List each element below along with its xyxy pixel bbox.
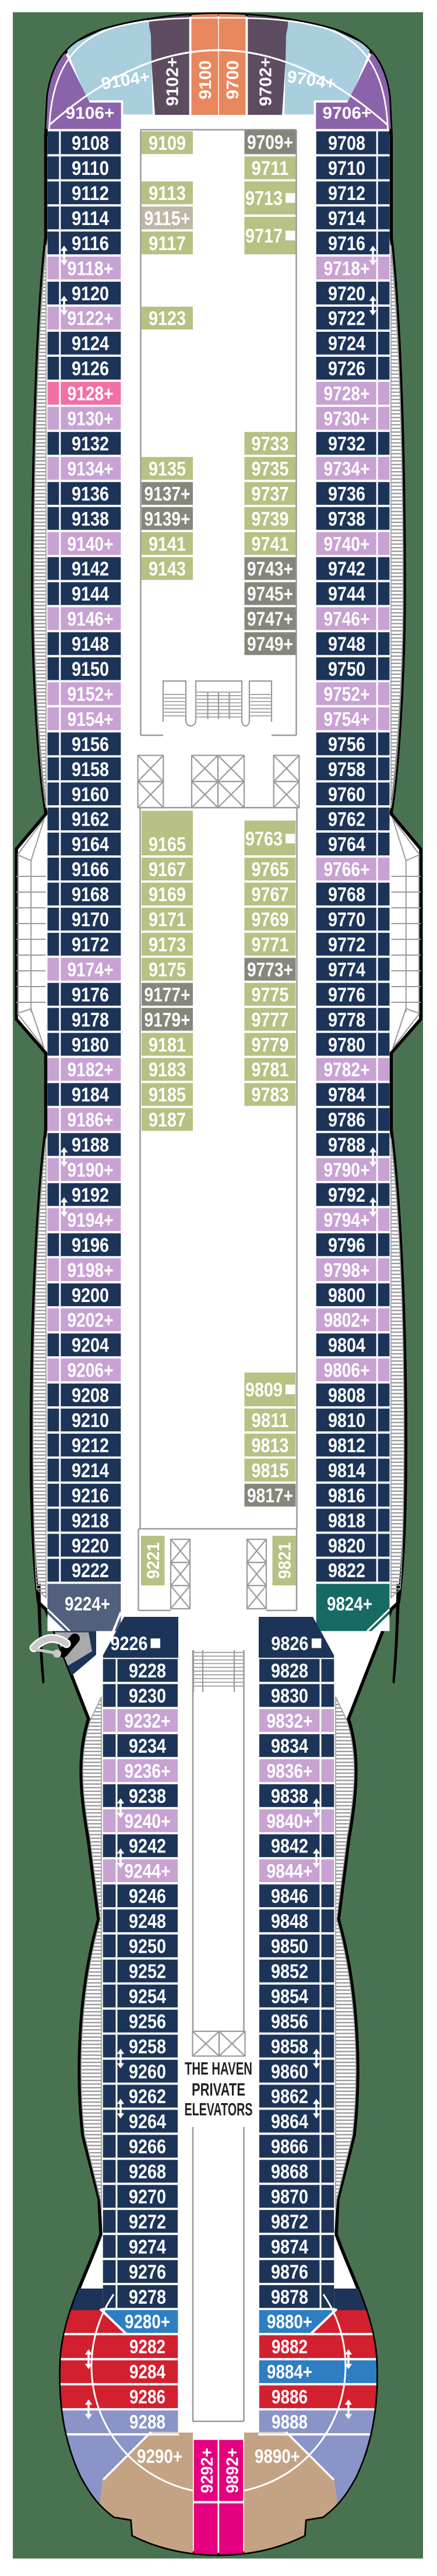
svg-text:9732: 9732 [328, 433, 365, 455]
svg-text:9178: 9178 [72, 1009, 109, 1031]
svg-text:9712: 9712 [328, 183, 365, 205]
svg-text:THE HAVEN: THE HAVEN [185, 2059, 252, 2079]
svg-text:9858: 9858 [271, 2035, 308, 2058]
svg-text:9763: 9763 [245, 828, 283, 850]
svg-text:9270: 9270 [129, 2186, 166, 2208]
svg-text:9110: 9110 [72, 157, 109, 180]
svg-text:9282: 9282 [129, 2336, 165, 2357]
svg-text:9846: 9846 [271, 1886, 308, 1908]
svg-text:9822: 9822 [328, 1560, 365, 1582]
svg-text:9114: 9114 [72, 208, 109, 230]
svg-text:9200: 9200 [72, 1285, 109, 1307]
svg-text:9798+: 9798+ [324, 1259, 370, 1282]
svg-text:9258: 9258 [129, 2035, 166, 2058]
svg-text:9108: 9108 [72, 132, 109, 155]
svg-text:9828: 9828 [271, 1660, 308, 1682]
svg-text:9834: 9834 [271, 1735, 308, 1757]
svg-text:9804: 9804 [328, 1335, 365, 1357]
svg-text:9238: 9238 [129, 1785, 166, 1808]
svg-text:9284: 9284 [129, 2361, 166, 2382]
svg-text:9224+: 9224+ [65, 1593, 110, 1615]
svg-text:9260: 9260 [129, 2061, 166, 2083]
svg-text:9868: 9868 [271, 2161, 308, 2183]
svg-text:9844+: 9844+ [267, 1861, 313, 1883]
svg-text:9802+: 9802+ [324, 1310, 370, 1332]
svg-text:9202+: 9202+ [68, 1310, 114, 1332]
svg-text:9813: 9813 [252, 1435, 289, 1457]
svg-text:9779: 9779 [252, 1034, 289, 1056]
svg-text:9730+: 9730+ [324, 408, 370, 430]
svg-text:9872: 9872 [271, 2211, 308, 2233]
svg-text:9806+: 9806+ [324, 1360, 370, 1382]
svg-text:9250: 9250 [129, 1936, 166, 1958]
svg-text:9840+: 9840+ [267, 1810, 313, 1833]
svg-text:9222: 9222 [72, 1560, 109, 1582]
svg-text:9722: 9722 [328, 308, 365, 330]
svg-text:9274: 9274 [129, 2236, 166, 2258]
svg-text:9112: 9112 [72, 183, 109, 205]
svg-text:9144: 9144 [72, 583, 109, 605]
svg-text:9292+: 9292+ [198, 2448, 217, 2493]
svg-text:9852: 9852 [271, 1961, 308, 1983]
svg-text:9786: 9786 [328, 1109, 365, 1131]
svg-text:9169: 9169 [149, 884, 186, 906]
svg-text:9174+: 9174+ [68, 959, 114, 981]
svg-text:9154+: 9154+ [68, 708, 114, 731]
svg-text:9268: 9268 [129, 2161, 166, 2183]
svg-text:9777: 9777 [252, 1009, 289, 1031]
svg-text:9185: 9185 [149, 1084, 186, 1106]
svg-text:9220: 9220 [72, 1535, 109, 1557]
svg-text:9743+: 9743+ [247, 558, 293, 580]
svg-text:9762: 9762 [328, 809, 365, 831]
svg-text:9702+: 9702+ [257, 57, 276, 106]
svg-text:9764: 9764 [328, 834, 365, 856]
svg-text:9711: 9711 [252, 157, 289, 180]
svg-text:9748: 9748 [328, 633, 365, 655]
svg-text:9183: 9183 [149, 1059, 186, 1081]
svg-text:9272: 9272 [129, 2211, 166, 2233]
svg-text:9708: 9708 [328, 132, 365, 155]
svg-text:9776: 9776 [328, 984, 365, 1006]
svg-text:9771: 9771 [252, 934, 289, 956]
svg-text:9158: 9158 [72, 759, 109, 781]
svg-text:9817+: 9817+ [247, 1484, 293, 1507]
svg-text:9724: 9724 [328, 333, 365, 355]
svg-text:9256: 9256 [129, 2010, 166, 2033]
svg-text:9171: 9171 [149, 909, 186, 931]
svg-text:9138: 9138 [72, 508, 109, 530]
svg-text:9880+: 9880+ [267, 2311, 312, 2332]
svg-text:9192: 9192 [72, 1184, 109, 1206]
svg-text:9165: 9165 [149, 833, 186, 855]
svg-text:9148: 9148 [72, 633, 109, 655]
svg-text:9160: 9160 [72, 784, 109, 806]
svg-text:9109: 9109 [149, 132, 186, 155]
svg-text:9737: 9737 [252, 483, 289, 505]
svg-text:9870: 9870 [271, 2186, 308, 2208]
svg-text:9773+: 9773+ [247, 959, 293, 981]
svg-text:9766+: 9766+ [324, 859, 370, 881]
svg-text:9170: 9170 [72, 909, 109, 931]
svg-text:9242: 9242 [129, 1836, 166, 1858]
svg-text:9150: 9150 [72, 658, 109, 680]
svg-text:9286: 9286 [129, 2386, 165, 2407]
svg-text:9710: 9710 [328, 157, 365, 180]
svg-text:9772: 9772 [328, 934, 365, 956]
svg-text:9126: 9126 [72, 358, 109, 380]
svg-text:9234: 9234 [129, 1735, 166, 1757]
svg-text:9740+: 9740+ [324, 533, 370, 555]
svg-text:9832+: 9832+ [267, 1710, 313, 1732]
svg-text:9811: 9811 [252, 1410, 289, 1432]
svg-text:9830: 9830 [271, 1685, 308, 1707]
svg-text:9124: 9124 [72, 333, 109, 355]
svg-text:9130+: 9130+ [68, 408, 114, 430]
svg-text:9218: 9218 [72, 1510, 109, 1532]
svg-text:9228: 9228 [129, 1660, 166, 1682]
svg-text:9244+: 9244+ [125, 1861, 171, 1883]
svg-text:9187: 9187 [149, 1109, 186, 1131]
svg-text:9816: 9816 [328, 1484, 365, 1507]
svg-text:9118+: 9118+ [68, 258, 114, 280]
svg-text:9184: 9184 [72, 1084, 109, 1106]
svg-text:9728+: 9728+ [324, 383, 370, 405]
svg-text:9882: 9882 [272, 2336, 308, 2357]
svg-text:9888: 9888 [272, 2411, 308, 2433]
svg-text:9176: 9176 [72, 984, 109, 1006]
svg-text:9135: 9135 [149, 458, 186, 480]
svg-text:9115+: 9115+ [145, 208, 191, 230]
svg-text:9173: 9173 [149, 934, 186, 956]
svg-text:9768: 9768 [328, 884, 365, 906]
svg-text:9212: 9212 [72, 1435, 109, 1457]
svg-text:9182+: 9182+ [68, 1059, 114, 1081]
svg-text:9132: 9132 [72, 433, 109, 455]
svg-text:9821: 9821 [276, 1542, 295, 1579]
svg-text:9167: 9167 [149, 859, 186, 881]
svg-text:9120: 9120 [72, 283, 109, 305]
svg-text:9717: 9717 [245, 225, 283, 247]
svg-text:9781: 9781 [252, 1059, 289, 1081]
svg-text:9738: 9738 [328, 508, 365, 530]
svg-text:9774: 9774 [328, 959, 365, 981]
svg-text:9796: 9796 [328, 1234, 365, 1257]
svg-text:9756: 9756 [328, 734, 365, 756]
svg-text:9718+: 9718+ [324, 258, 370, 280]
svg-text:9784: 9784 [328, 1084, 365, 1106]
svg-text:9874: 9874 [271, 2236, 308, 2258]
svg-text:9878: 9878 [271, 2286, 308, 2308]
svg-text:9264: 9264 [129, 2111, 166, 2133]
svg-text:9146+: 9146+ [68, 608, 114, 630]
svg-text:9716: 9716 [328, 233, 365, 255]
svg-text:9860: 9860 [271, 2061, 308, 2083]
svg-text:9180: 9180 [72, 1034, 109, 1056]
svg-text:9123: 9123 [149, 308, 186, 330]
svg-text:9232+: 9232+ [125, 1710, 171, 1732]
svg-text:9214: 9214 [72, 1459, 109, 1482]
svg-text:9172: 9172 [72, 934, 109, 956]
svg-text:9140+: 9140+ [68, 533, 114, 555]
svg-text:9714: 9714 [328, 208, 365, 230]
svg-text:9736: 9736 [328, 483, 365, 505]
svg-text:9156: 9156 [72, 734, 109, 756]
svg-text:9204: 9204 [72, 1335, 109, 1357]
svg-text:9128+: 9128+ [68, 383, 114, 405]
svg-text:9792: 9792 [328, 1184, 365, 1206]
svg-text:9179+: 9179+ [145, 1009, 191, 1031]
svg-text:9809: 9809 [245, 1379, 283, 1401]
svg-text:9892+: 9892+ [224, 2448, 242, 2493]
svg-text:9815: 9815 [252, 1459, 289, 1482]
svg-text:9254: 9254 [129, 1985, 166, 2008]
svg-text:9713: 9713 [245, 188, 283, 210]
svg-text:9181: 9181 [149, 1034, 186, 1056]
svg-text:9230: 9230 [129, 1685, 166, 1707]
svg-text:9168: 9168 [72, 884, 109, 906]
svg-text:9139+: 9139+ [145, 508, 191, 530]
svg-text:9824+: 9824+ [327, 1593, 372, 1615]
svg-text:9216: 9216 [72, 1484, 109, 1507]
svg-text:9236+: 9236+ [125, 1760, 171, 1782]
svg-text:9246: 9246 [129, 1886, 166, 1908]
svg-text:9134+: 9134+ [68, 458, 114, 480]
svg-text:9280+: 9280+ [125, 2311, 170, 2332]
svg-text:9726: 9726 [328, 358, 365, 380]
svg-text:9820: 9820 [328, 1535, 365, 1557]
svg-text:9177+: 9177+ [145, 984, 191, 1006]
svg-text:9208: 9208 [72, 1385, 109, 1407]
svg-text:9814: 9814 [328, 1459, 365, 1482]
svg-text:9790+: 9790+ [324, 1159, 370, 1181]
svg-text:9890+: 9890+ [255, 2445, 300, 2467]
svg-text:9288: 9288 [129, 2411, 165, 2433]
svg-text:9750: 9750 [328, 658, 365, 680]
svg-text:9735: 9735 [252, 458, 289, 480]
svg-text:9742: 9742 [328, 558, 365, 580]
svg-text:9186+: 9186+ [68, 1109, 114, 1131]
svg-text:9754+: 9754+ [324, 708, 370, 731]
svg-text:9188: 9188 [72, 1134, 109, 1156]
svg-text:9800: 9800 [328, 1285, 365, 1307]
svg-text:9210: 9210 [72, 1410, 109, 1432]
svg-text:9758: 9758 [328, 759, 365, 781]
svg-text:9266: 9266 [129, 2136, 166, 2158]
svg-text:9221: 9221 [144, 1542, 163, 1579]
svg-text:9248: 9248 [129, 1911, 166, 1933]
svg-text:9137+: 9137+ [145, 483, 191, 505]
svg-text:9788: 9788 [328, 1134, 365, 1156]
svg-text:9122+: 9122+ [68, 308, 114, 330]
svg-text:9864: 9864 [271, 2111, 308, 2133]
svg-text:9848: 9848 [271, 1911, 308, 1933]
svg-text:9747+: 9747+ [247, 608, 293, 630]
svg-text:9278: 9278 [129, 2286, 166, 2308]
svg-text:9240+: 9240+ [125, 1810, 171, 1833]
svg-text:9102+: 9102+ [164, 57, 182, 106]
svg-text:9194+: 9194+ [68, 1209, 114, 1231]
svg-text:9733: 9733 [252, 433, 289, 455]
svg-text:9720: 9720 [328, 283, 365, 305]
svg-text:9886: 9886 [272, 2386, 308, 2407]
svg-text:9862: 9862 [271, 2086, 308, 2108]
svg-text:9767: 9767 [252, 884, 289, 906]
svg-text:9749+: 9749+ [247, 633, 293, 655]
svg-text:9826: 9826 [271, 1633, 308, 1654]
svg-text:9152+: 9152+ [68, 683, 114, 706]
svg-text:PRIVATE: PRIVATE [192, 2080, 245, 2100]
svg-text:9866: 9866 [271, 2136, 308, 2158]
svg-text:9884+: 9884+ [267, 2361, 312, 2382]
svg-text:9164: 9164 [72, 834, 109, 856]
svg-text:9812: 9812 [328, 1435, 365, 1457]
svg-text:9175: 9175 [149, 959, 186, 981]
svg-text:9162: 9162 [72, 809, 109, 831]
svg-text:9810: 9810 [328, 1410, 365, 1432]
svg-text:9106+: 9106+ [66, 104, 115, 123]
svg-text:9770: 9770 [328, 909, 365, 931]
svg-text:9769: 9769 [252, 909, 289, 931]
svg-text:9745+: 9745+ [247, 583, 293, 605]
svg-text:9262: 9262 [129, 2086, 166, 2108]
svg-text:9706+: 9706+ [323, 104, 372, 123]
svg-text:9143: 9143 [149, 558, 186, 580]
svg-text:9700: 9700 [224, 61, 242, 100]
svg-text:9196: 9196 [72, 1234, 109, 1257]
svg-text:9709+: 9709+ [247, 132, 293, 154]
svg-text:9290+: 9290+ [137, 2445, 182, 2467]
svg-text:9782+: 9782+ [324, 1059, 370, 1081]
svg-text:9136: 9136 [72, 483, 109, 505]
svg-text:9760: 9760 [328, 784, 365, 806]
svg-text:9276: 9276 [129, 2261, 166, 2283]
svg-text:9206+: 9206+ [68, 1360, 114, 1382]
svg-text:9836+: 9836+ [267, 1760, 313, 1782]
svg-text:9746+: 9746+ [324, 608, 370, 630]
svg-text:9190+: 9190+ [68, 1159, 114, 1181]
svg-text:9116: 9116 [72, 233, 109, 255]
svg-text:9166: 9166 [72, 859, 109, 881]
svg-text:9765: 9765 [252, 859, 289, 881]
svg-text:9198+: 9198+ [68, 1259, 114, 1282]
svg-text:9734+: 9734+ [324, 458, 370, 480]
svg-text:9226: 9226 [111, 1633, 148, 1654]
svg-text:9117: 9117 [149, 233, 186, 255]
svg-text:9252: 9252 [129, 1961, 166, 1983]
svg-text:9838: 9838 [271, 1785, 308, 1808]
svg-text:9775: 9775 [252, 984, 289, 1006]
svg-text:9876: 9876 [271, 2261, 308, 2283]
svg-text:9100: 9100 [196, 61, 215, 100]
svg-text:9856: 9856 [271, 2010, 308, 2033]
svg-text:9818: 9818 [328, 1510, 365, 1532]
svg-text:9141: 9141 [149, 533, 186, 555]
svg-text:9780: 9780 [328, 1034, 365, 1056]
svg-text:9739: 9739 [252, 508, 289, 530]
svg-text:9842: 9842 [271, 1836, 308, 1858]
svg-text:9778: 9778 [328, 1009, 365, 1031]
svg-text:9850: 9850 [271, 1936, 308, 1958]
svg-text:9744: 9744 [328, 583, 365, 605]
svg-text:9854: 9854 [271, 1985, 308, 2008]
svg-text:9741: 9741 [252, 533, 289, 555]
svg-text:9794+: 9794+ [324, 1209, 370, 1231]
svg-text:9783: 9783 [252, 1084, 289, 1106]
svg-text:9808: 9808 [328, 1385, 365, 1407]
svg-text:ELEVATORS: ELEVATORS [185, 2100, 253, 2119]
svg-text:9142: 9142 [72, 558, 109, 580]
svg-text:9113: 9113 [149, 183, 186, 205]
svg-text:9752+: 9752+ [324, 683, 370, 706]
